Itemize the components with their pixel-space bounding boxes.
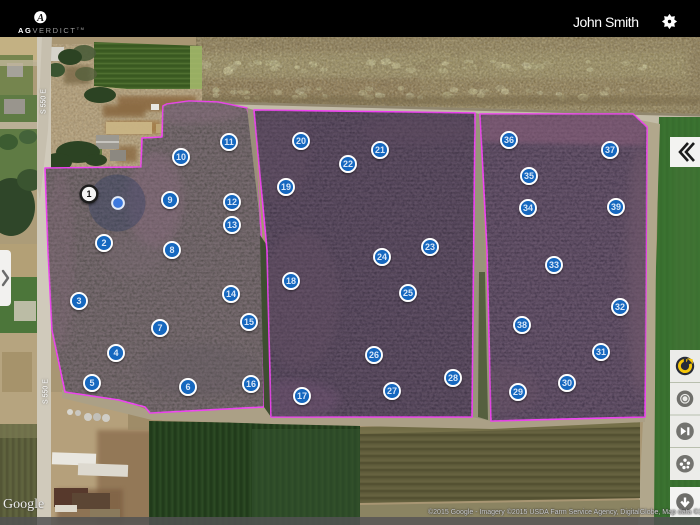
svg-text:6: 6 — [185, 382, 190, 392]
svg-text:18: 18 — [286, 276, 296, 286]
svg-text:7: 7 — [157, 323, 162, 333]
svg-text:20: 20 — [296, 136, 306, 146]
svg-text:15: 15 — [244, 317, 254, 327]
svg-text:3: 3 — [76, 296, 81, 306]
svg-text:19: 19 — [281, 182, 291, 192]
svg-text:17: 17 — [297, 391, 307, 401]
svg-text:31: 31 — [596, 347, 606, 357]
svg-text:30: 30 — [562, 378, 572, 388]
svg-text:1: 1 — [86, 189, 91, 199]
svg-text:10: 10 — [176, 152, 186, 162]
svg-text:38: 38 — [517, 320, 527, 330]
svg-text:12: 12 — [227, 197, 237, 207]
svg-text:26: 26 — [369, 350, 379, 360]
svg-text:13: 13 — [227, 220, 237, 230]
svg-text:29: 29 — [513, 387, 523, 397]
svg-text:2: 2 — [101, 238, 106, 248]
svg-text:8: 8 — [169, 245, 174, 255]
svg-text:34: 34 — [523, 203, 533, 213]
svg-text:25: 25 — [403, 288, 413, 298]
svg-text:39: 39 — [611, 202, 621, 212]
svg-text:32: 32 — [615, 302, 625, 312]
svg-text:35: 35 — [524, 171, 534, 181]
svg-text:23: 23 — [425, 242, 435, 252]
svg-text:22: 22 — [343, 159, 353, 169]
svg-text:5: 5 — [89, 378, 94, 388]
svg-text:27: 27 — [387, 386, 397, 396]
svg-text:28: 28 — [448, 373, 458, 383]
svg-text:33: 33 — [549, 260, 559, 270]
svg-text:37: 37 — [605, 145, 615, 155]
svg-text:4: 4 — [113, 348, 118, 358]
svg-text:24: 24 — [377, 252, 387, 262]
svg-text:14: 14 — [226, 289, 236, 299]
svg-text:21: 21 — [375, 145, 385, 155]
svg-text:A: A — [36, 13, 44, 24]
svg-text:9: 9 — [167, 195, 172, 205]
svg-text:36: 36 — [504, 135, 514, 145]
svg-text:11: 11 — [224, 137, 234, 147]
svg-text:16: 16 — [246, 379, 256, 389]
